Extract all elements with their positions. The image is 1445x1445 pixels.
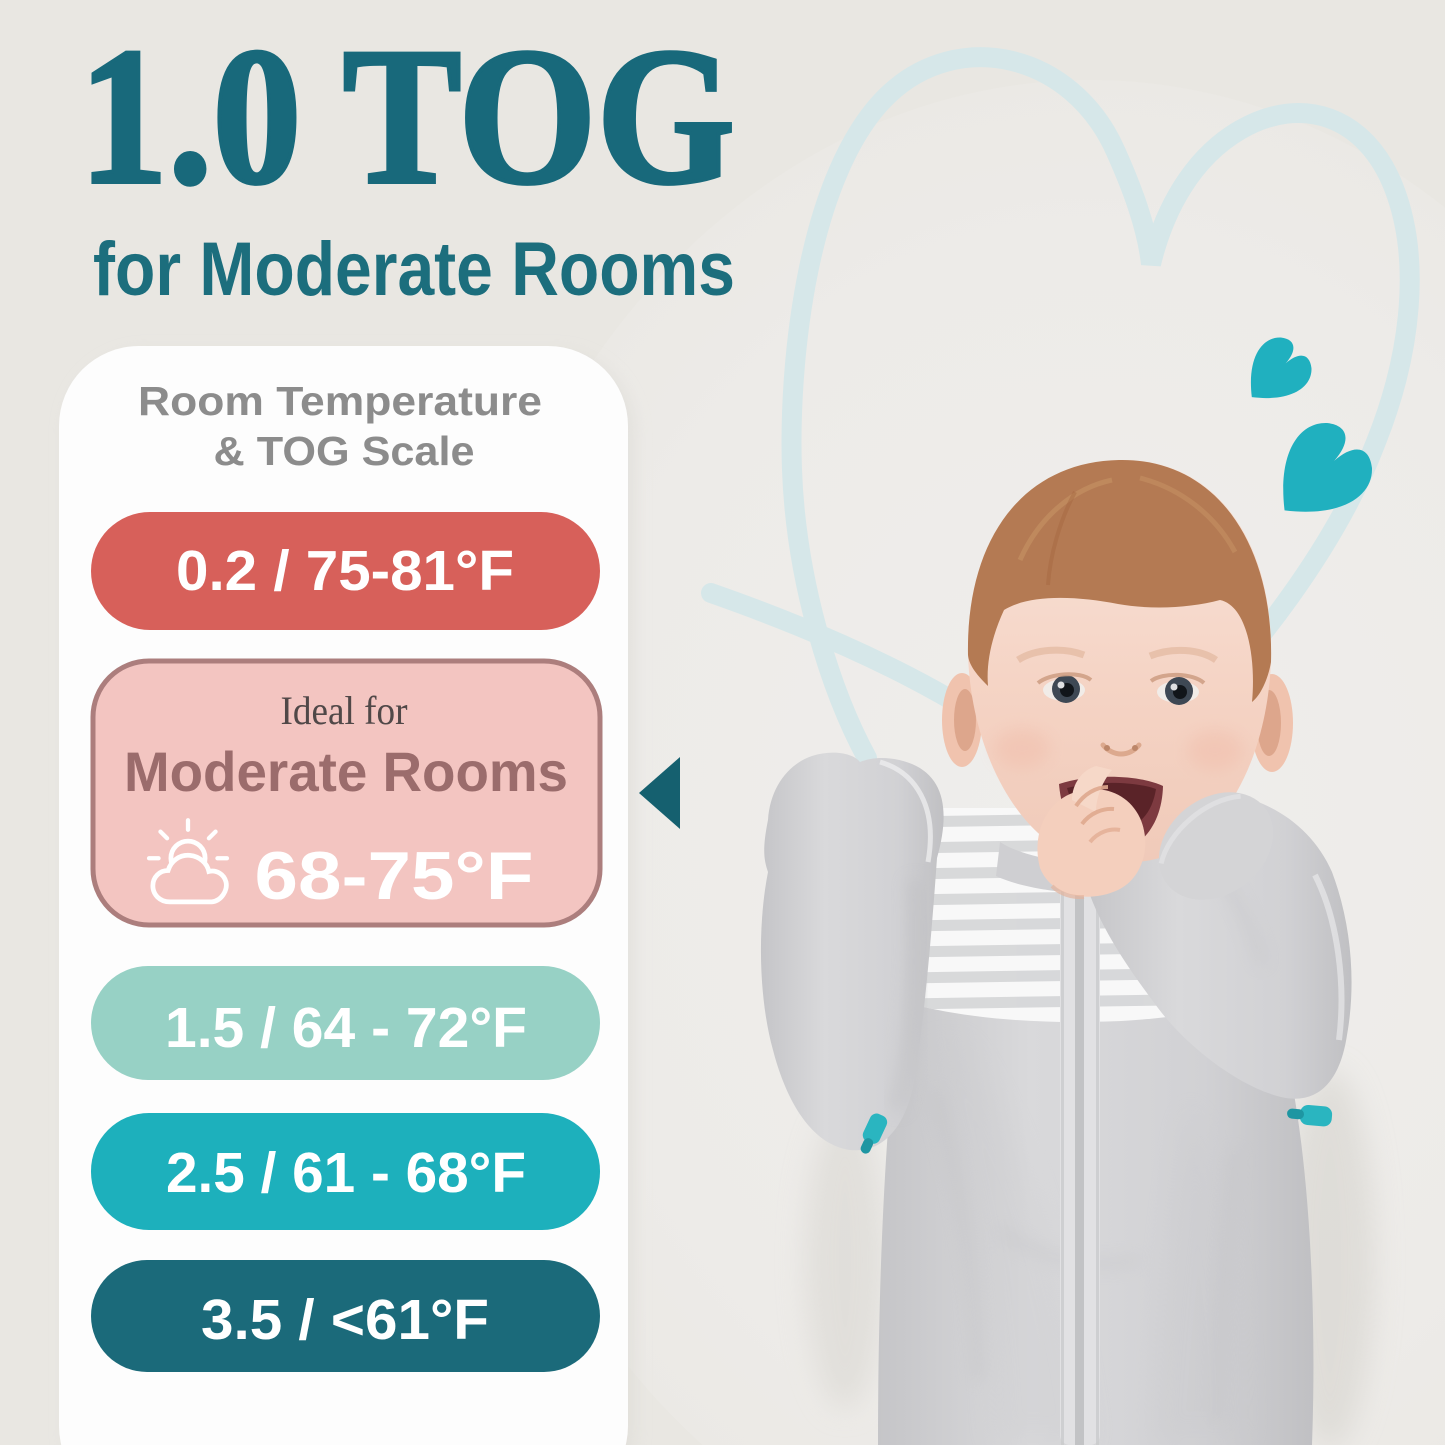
svg-text:1.0 TOG: 1.0 TOG: [79, 8, 735, 225]
svg-text:for Moderate Rooms: for Moderate Rooms: [93, 227, 735, 312]
svg-text:Ideal for: Ideal for: [281, 688, 408, 733]
svg-text:68-75°F: 68-75°F: [255, 838, 534, 914]
svg-text:Room Temperature: Room Temperature: [138, 378, 542, 424]
svg-text:3.5 / <61°F: 3.5 / <61°F: [201, 1288, 489, 1352]
svg-text:Moderate Rooms: Moderate Rooms: [124, 740, 568, 803]
svg-text:& TOG Scale: & TOG Scale: [214, 428, 475, 474]
svg-text:0.2 / 75-81°F: 0.2 / 75-81°F: [176, 539, 514, 603]
svg-text:1.5 / 64 - 72°F: 1.5 / 64 - 72°F: [165, 996, 527, 1060]
svg-text:2.5 / 61 - 68°F: 2.5 / 61 - 68°F: [166, 1141, 526, 1205]
